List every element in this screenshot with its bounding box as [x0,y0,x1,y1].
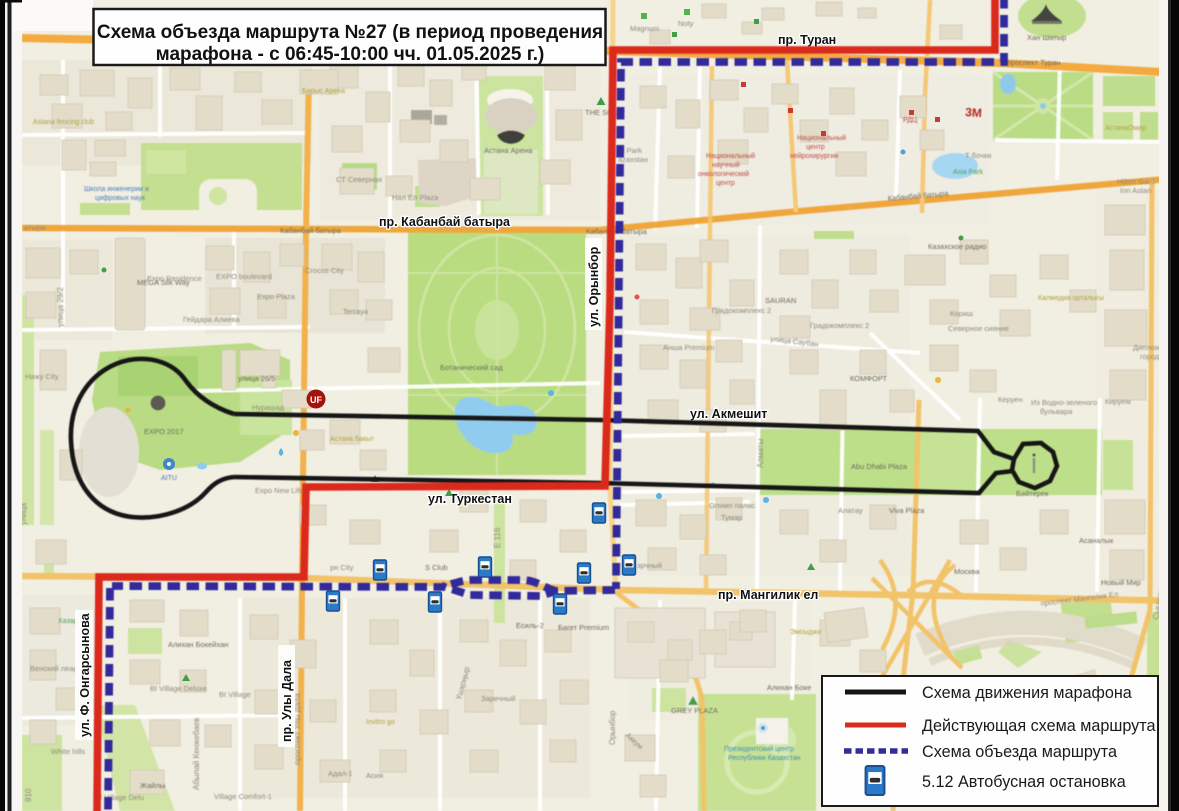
svg-text:Схема объезда маршрута №27 (в: Схема объезда маршрута №27 (в период про… [97,22,603,43]
svg-text:Казахское радио: Казахское радио [928,242,986,251]
svg-text:Хан Шатыр: Хан Шатыр [1027,33,1066,42]
svg-text:нейрохирургии: нейрохирургии [790,152,838,160]
svg-text:UF: UF [310,395,322,405]
svg-text:Нажу City: Нажу City [25,372,59,381]
svg-text:Анша Premium: Анша Premium [663,343,714,352]
svg-text:центр: центр [806,144,825,151]
svg-text:AITU: AITU [161,475,177,482]
svg-text:Республики Казахстан: Республики Казахстан [728,754,801,762]
svg-text:Есиль-2: Есиль-2 [516,621,544,630]
svg-text:марафона - с 06:45-10:00 чч. 0: марафона - с 06:45-10:00 чч. 01.05.2025 … [156,44,545,65]
svg-text:ул. Акмешит: ул. Акмешит [690,407,767,421]
svg-text:улица 26/5: улица 26/5 [238,374,275,383]
svg-text:проспект Туран: проспект Туран [1007,58,1061,67]
svg-text:бульвара: бульвара [1040,407,1073,416]
svg-text:РДЦ: РДЦ [903,117,918,124]
svg-text:ул. Орынбор: ул. Орынбор [587,246,601,327]
svg-text:Схема движения марафона: Схема движения марафона [922,684,1132,702]
svg-text:Астана бакыт: Астана бакыт [330,435,375,443]
svg-text:Жайлы: Жайлы [140,781,165,790]
svg-text:Кабанбай батыра: Кабанбай батыра [280,226,342,235]
svg-text:BI Village: BI Village [219,690,251,699]
svg-text:Viva Plaza: Viva Plaza [889,506,925,515]
svg-text:Нал Ел Plaza: Нал Ел Plaza [392,193,439,202]
svg-text:Тумар: Тумар [721,513,742,522]
svg-text:пр. Кабанбай батыра: пр. Кабанбай батыра [379,215,511,229]
svg-text:Москва: Москва [954,567,980,576]
svg-text:Expo Plaza: Expo Plaza [257,292,296,301]
svg-text:Президентский центр: Президентский центр [724,745,794,753]
svg-text:Т бочки: Т бочки [965,151,991,160]
svg-text:Astana fencing club: Astana fencing club [33,119,94,126]
svg-text:пр. Улы Дала: пр. Улы Дала [280,659,294,742]
svg-text:научный: научный [712,161,740,169]
svg-text:Хазар: Хазар [58,618,78,625]
svg-text:3M: 3M [965,105,983,120]
svg-text:Абылай Кенжебаев: Абылай Кенжебаев [192,718,201,790]
svg-text:Из Водно-зеленого: Из Водно-зеленого [1031,398,1097,407]
svg-text:BI Village Delu: BI Village Delu [95,793,144,802]
svg-text:Венский леар: Венский леар [30,664,78,673]
svg-text:Олимп палас: Олимп палас [709,501,755,510]
svg-text:ул. Ф. Онгарсынова: ул. Ф. Онгарсынова [78,612,92,737]
svg-text:СТ Северная: СТ Северная [336,175,382,184]
svg-text:центр: центр [716,180,735,187]
svg-text:Бәйтерек: Бәйтерек [1016,489,1049,498]
svg-text:КОМФОРТ: КОМФОРТ [850,374,887,383]
svg-text:АстанаОмир: АстанаОмир [1105,125,1146,132]
svg-text:Новый Мир: Новый Мир [1101,578,1141,587]
svg-text:Кируем: Кируем [1105,397,1131,406]
svg-text:Hilton Gard: Hilton Gard [1117,177,1155,186]
svg-text:Asia Park: Asia Park [953,169,983,176]
svg-text:пр. Мангилик ел: пр. Мангилик ел [718,588,818,602]
svg-text:GREY PLAZA: GREY PLAZA [671,706,718,715]
svg-text:S Club: S Club [425,563,448,572]
svg-text:Действующая схема маршрута: Действующая схема маршрута [922,717,1156,735]
svg-text:пр. Туран: пр. Туран [778,33,836,47]
svg-text:Village Comfort-1: Village Comfort-1 [214,792,272,801]
svg-text:Terraya: Terraya [343,307,369,316]
svg-text:Алматы: Алматы [756,439,765,468]
svg-text:Калмедиа орталыгы: Калмедиа орталыгы [1038,295,1104,302]
svg-text:SAURAN: SAURAN [765,296,796,305]
svg-text:EXPO 2017: EXPO 2017 [144,427,184,436]
svg-text:Алатау: Алатау [838,506,863,515]
svg-text:EXPO boulevard: EXPO boulevard [216,272,272,281]
svg-text:рн City: рн City [330,563,354,572]
svg-text:цифровых наук: цифровых наук [95,195,146,202]
svg-text:BI Village Deluxe: BI Village Deluxe [150,684,207,693]
svg-text:Астана Арена: Астана Арена [484,146,533,155]
svg-text:онкологический: онкологический [698,170,749,178]
svg-text:Керуен: Керуен [998,395,1023,404]
svg-text:Схема объезда маршрута: Схема объезда маршрута [922,743,1117,761]
svg-text:Ботанический сад: Ботанический сад [440,363,503,372]
svg-text:Гейдара Алиева: Гейдара Алиева [183,315,241,324]
svg-text:Abu Dhabi Plaza: Abu Dhabi Plaza [851,462,908,471]
svg-text:Заречный: Заречный [481,694,515,703]
svg-text:Inn Astan: Inn Astan [1120,186,1151,195]
svg-text:Invitro go: Invitro go [366,719,395,726]
svg-text:Багет Premium: Багет Premium [558,623,609,632]
svg-text:Градокомплекс 2: Градокомплекс 2 [712,306,771,315]
svg-text:Орынбор: Орынбор [608,710,617,745]
svg-text:Эмсыджи: Эмсыджи [790,629,821,636]
svg-text:Градокомплекс 2: Градокомплекс 2 [810,321,869,330]
svg-text:5.12 Автобусная остановка: 5.12 Автобусная остановка [922,773,1126,791]
svg-text:Адал-1: Адал-1 [328,769,353,778]
svg-text:Асия: Асия [366,771,383,780]
svg-text:Нурашад: Нурашад [252,403,285,412]
svg-text:Алихан Бокейхан: Алихан Бокейхан [168,640,228,649]
svg-text:улица 29/2: улица 29/2 [56,287,65,327]
svg-text:White hills: White hills [51,747,85,756]
svg-text:Expo New Life: Expo New Life [255,486,303,495]
svg-text:Северное сияние: Северное сияние [948,324,1009,333]
svg-text:Национальный: Национальный [706,152,755,160]
svg-text:атыра: атыра [24,223,46,232]
svg-text:Кориш: Кориш [950,309,973,318]
svg-text:ул. Туркестан: ул. Туркестан [428,492,512,506]
svg-text:910: 910 [24,788,33,802]
svg-text:Барыс Арена: Барыс Арена [302,88,345,95]
svg-text:Noty: Noty [678,19,694,28]
svg-text:Алихан Боке: Алихан Боке [767,683,811,692]
svg-text:Школа инженерии и: Школа инженерии и [84,186,149,193]
svg-text:Expo Residence: Expo Residence [147,274,202,283]
svg-text:Е 116: Е 116 [493,527,502,548]
svg-text:Асаналык: Асаналык [1079,536,1114,545]
svg-text:Crocus City: Crocus City [305,266,344,275]
svg-text:Magnum: Magnum [630,24,659,33]
svg-text:зрчный: зрчный [637,561,662,570]
